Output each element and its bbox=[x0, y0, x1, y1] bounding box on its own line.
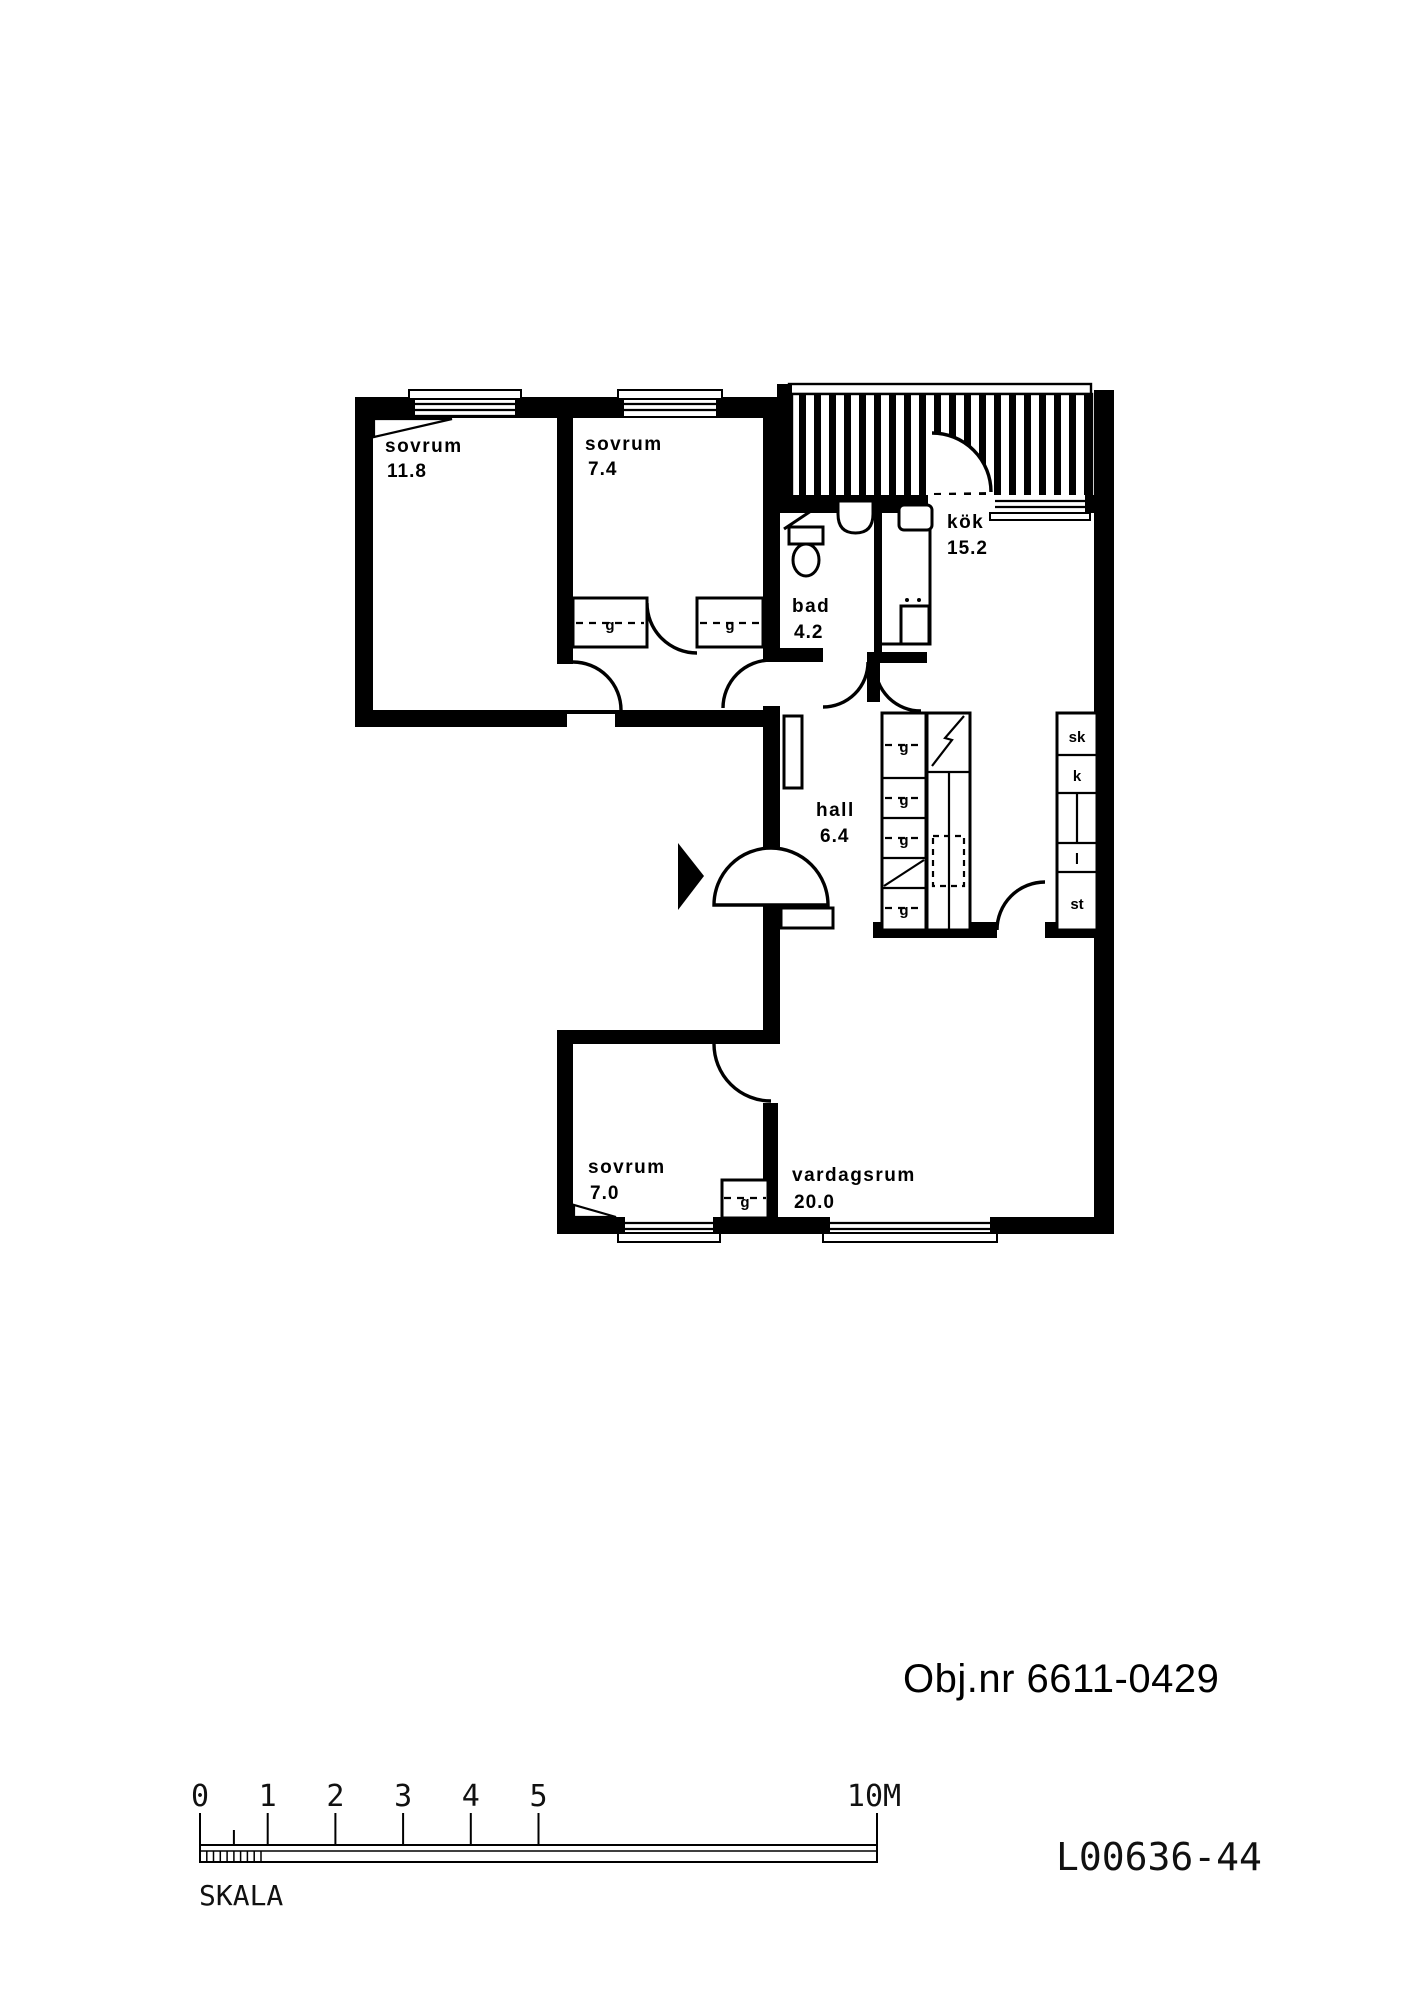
object-number: Obj.nr 6611-0429 bbox=[903, 1657, 1219, 1701]
closet-g-5: g bbox=[605, 617, 614, 634]
entrance-arrow-icon bbox=[678, 843, 704, 910]
scale-title: SKALA bbox=[199, 1879, 283, 1912]
entrance bbox=[678, 716, 833, 928]
door-arc-bad bbox=[823, 662, 868, 707]
scale-tick-0: 0 bbox=[191, 1779, 209, 1814]
kitchen-sink-icon bbox=[899, 505, 932, 530]
toilet-icon bbox=[789, 527, 823, 544]
kitchen-fixtures bbox=[882, 505, 932, 644]
scale-tick-5: 5 bbox=[529, 1779, 547, 1814]
room-area-bad: 4.2 bbox=[794, 622, 823, 643]
room-label-sovrum-11-8: sovrum bbox=[385, 436, 463, 457]
door-arc-sovrum-11-8 bbox=[573, 662, 621, 710]
room-area-kok: 15.2 bbox=[947, 538, 988, 559]
room-label-hall: hall bbox=[816, 800, 855, 821]
footer: Obj.nr 6611-0429 L00636-44 bbox=[903, 1657, 1262, 1879]
room-label-kok: kök bbox=[947, 512, 984, 533]
room-area-vardagsrum: 20.0 bbox=[794, 1192, 835, 1213]
door-arc-kok bbox=[875, 665, 921, 711]
closet-sk: sk bbox=[1069, 729, 1086, 746]
closet-g-3: g bbox=[899, 832, 908, 849]
closet-g-4: g bbox=[899, 902, 908, 919]
bedroom-wardrobes: g g g bbox=[573, 598, 768, 1218]
door-arc-sovrum-7-4-closet bbox=[647, 603, 697, 653]
scale-end-label: 10M bbox=[847, 1779, 901, 1814]
room-label-bad: bad bbox=[792, 596, 830, 617]
closet-g-7: g bbox=[740, 1194, 749, 1211]
sink-icon bbox=[838, 501, 873, 533]
room-label-sovrum-7-4: sovrum bbox=[585, 434, 663, 455]
stove-icon bbox=[901, 606, 929, 644]
room-label-vardagsrum: vardagsrum bbox=[792, 1165, 916, 1186]
closet-g-2: g bbox=[899, 792, 908, 809]
hall-closets: g g g g sk k l st bbox=[882, 713, 1097, 930]
balcony bbox=[789, 384, 1092, 498]
radiator-mark-sovrum-11-8 bbox=[374, 419, 452, 437]
floor-plan-drawing: g g g g sk k l st g g g bbox=[0, 0, 1413, 2000]
scale-tick-3: 3 bbox=[394, 1779, 412, 1814]
closet-l: l bbox=[1075, 851, 1079, 868]
closet-g-6: g bbox=[725, 617, 734, 634]
entrance-door-swing bbox=[714, 848, 828, 905]
scale-tick-4: 4 bbox=[462, 1779, 480, 1814]
scale-tick-2: 2 bbox=[326, 1779, 344, 1814]
closet-st: st bbox=[1070, 896, 1083, 913]
door-arc-sovrum-7-0 bbox=[714, 1044, 771, 1101]
room-area-sovrum-7-0: 7.0 bbox=[590, 1183, 619, 1204]
floor-plan-page: g g g g sk k l st g g g bbox=[0, 0, 1413, 2000]
scale-ticks bbox=[200, 1813, 877, 1845]
radiator-mark-sovrum-7-0 bbox=[574, 1205, 616, 1217]
scale-tick-1: 1 bbox=[259, 1779, 277, 1814]
door-arc-passage bbox=[723, 660, 771, 708]
room-area-sovrum-11-8: 11.8 bbox=[387, 461, 427, 482]
room-label-sovrum-7-0: sovrum bbox=[588, 1157, 666, 1178]
entrance-door-leaf bbox=[784, 716, 802, 788]
corner-marks bbox=[374, 419, 616, 1217]
closet-k: k bbox=[1073, 768, 1082, 785]
scale-bar: 0 1 2 3 4 5 10M SKALA bbox=[191, 1779, 901, 1912]
room-area-sovrum-7-4: 7.4 bbox=[588, 459, 617, 480]
door-arc-vardagsrum bbox=[997, 882, 1045, 930]
drawing-number: L00636-44 bbox=[1056, 1835, 1262, 1879]
room-area-hall: 6.4 bbox=[820, 826, 849, 847]
windows bbox=[409, 390, 1090, 1242]
closet-g-1: g bbox=[899, 739, 908, 756]
door-arcs bbox=[573, 603, 1045, 1101]
